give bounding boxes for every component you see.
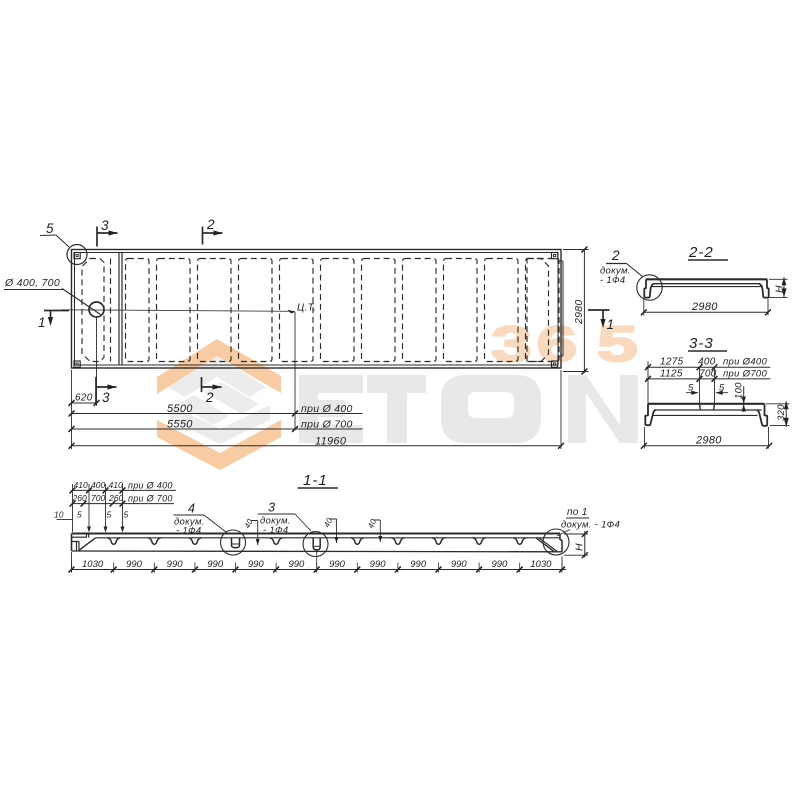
svg-text:2: 2 [206,217,215,232]
svg-text:- 1Ф4: - 1Ф4 [176,526,201,537]
svg-text:3: 3 [101,218,109,233]
svg-text:1030: 1030 [530,559,552,570]
svg-text:320: 320 [776,404,787,421]
svg-text:Ц.Т.: Ц.Т. [297,303,316,314]
svg-text:1275: 1275 [660,357,684,368]
svg-text:Ø 400, 700: Ø 400, 700 [4,277,60,289]
svg-text:при Ø700: при Ø700 [723,368,767,379]
svg-text:11960: 11960 [315,436,347,448]
svg-text:5550: 5550 [167,419,193,431]
svg-text:990: 990 [167,559,184,570]
svg-text:H: H [574,543,586,551]
svg-text:400: 400 [91,480,105,490]
svg-text:докум. - 1Ф4: докум. - 1Ф4 [561,520,620,531]
svg-text:5500: 5500 [167,403,193,415]
svg-text:990: 990 [248,559,265,570]
svg-text:2980: 2980 [691,301,718,313]
svg-text:3-3: 3-3 [689,335,714,352]
svg-text:260: 260 [108,493,123,503]
svg-text:5: 5 [77,510,82,520]
svg-text:100: 100 [734,382,745,399]
svg-text:5: 5 [124,510,129,520]
svg-text:- 1Ф4: - 1Ф4 [600,275,625,286]
svg-text:2-2: 2-2 [688,244,714,261]
svg-text:4: 4 [188,502,195,516]
svg-text:260: 260 [72,493,87,503]
svg-text:990: 990 [410,559,427,570]
svg-text:5: 5 [107,510,112,520]
svg-text:410: 410 [109,480,123,490]
svg-text:1: 1 [38,315,46,330]
svg-text:при Ø 400: при Ø 400 [301,403,353,415]
svg-text:700: 700 [91,493,105,503]
svg-text:3: 3 [102,390,110,405]
svg-text:1: 1 [607,317,615,332]
svg-text:990: 990 [451,559,468,570]
svg-text:410: 410 [74,480,88,490]
svg-text:1-1: 1-1 [303,472,328,489]
svg-text:990: 990 [329,559,346,570]
svg-text:H: H [774,285,786,293]
svg-text:1030: 1030 [82,559,104,570]
svg-text:5: 5 [46,221,54,236]
svg-text:400: 400 [698,357,716,368]
svg-text:2: 2 [205,390,214,405]
svg-text:при Ø 400: при Ø 400 [128,480,173,490]
svg-text:2: 2 [611,248,620,263]
svg-text:1125: 1125 [660,368,683,379]
svg-text:620: 620 [75,393,93,404]
svg-text:по 1: по 1 [567,507,588,518]
svg-text:10: 10 [54,510,64,520]
svg-text:990: 990 [288,559,305,570]
svg-text:2980: 2980 [573,299,585,325]
svg-text:990: 990 [491,559,508,570]
svg-text:при Ø 700: при Ø 700 [301,419,353,431]
svg-text:2980: 2980 [695,434,722,446]
svg-text:3: 3 [268,501,275,515]
svg-text:990: 990 [370,559,387,570]
svg-text:при Ø400: при Ø400 [723,357,767,368]
svg-text:- 1Ф4: - 1Ф4 [263,525,288,536]
svg-text:6: 6 [537,316,578,372]
svg-text:990: 990 [126,559,143,570]
svg-text:при Ø 700: при Ø 700 [128,494,173,504]
svg-text:990: 990 [207,559,224,570]
